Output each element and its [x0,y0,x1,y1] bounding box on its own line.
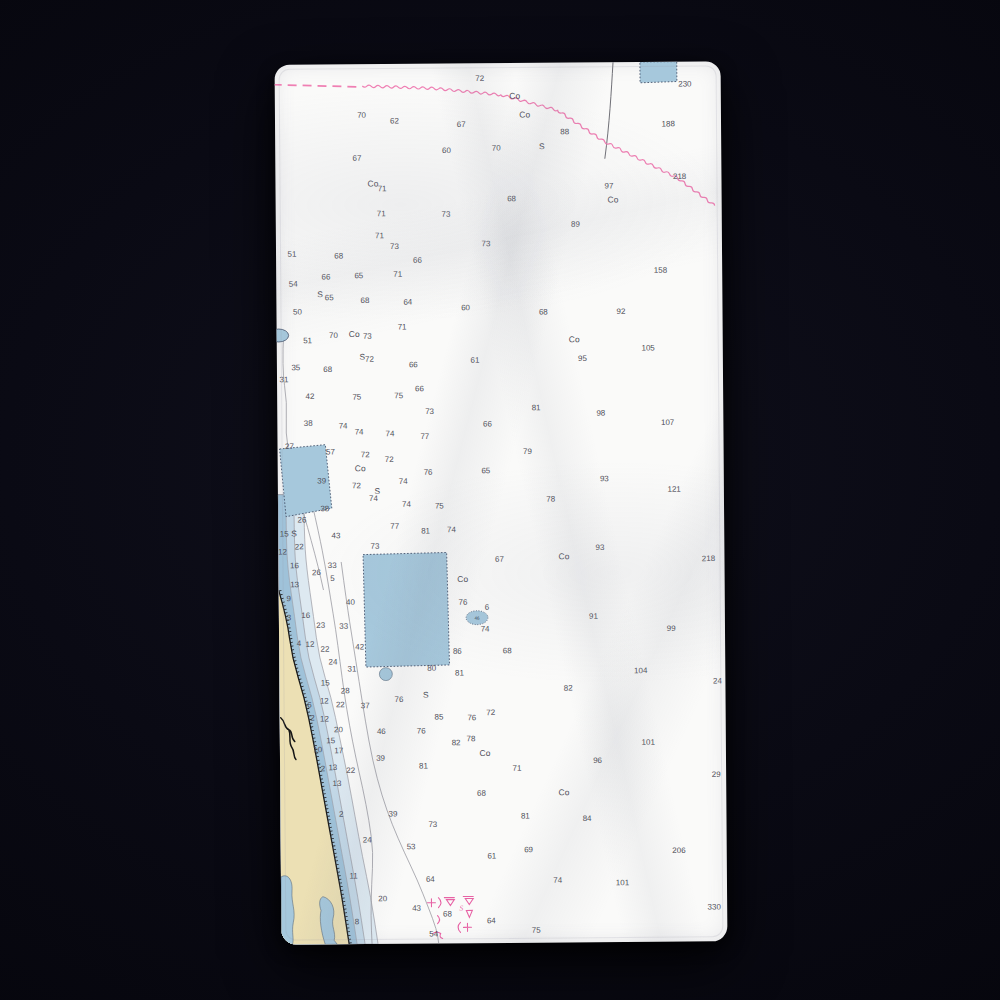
depth-sounding: 74 [355,427,364,436]
depth-sounding: 86 [453,647,462,656]
depth-sounding: 104 [634,666,648,675]
depth-sounding: 2 [310,713,315,722]
depth-sounding: 66 [322,272,331,281]
depth-sounding: 68 [503,646,512,655]
seabed-label: Co [569,334,580,344]
depth-sounding: 71 [375,231,384,240]
depth-sounding: 72 [475,74,484,83]
depth-sounding: 22 [336,700,345,709]
depth-sounding: 51 [303,336,312,345]
seabed-label: S [291,528,297,538]
depth-sounding: 20 [378,894,387,903]
seabed-label: Co [457,574,468,584]
mooring-symbol [458,922,472,932]
depth-sounding: 74 [553,876,562,885]
depth-sounding: 37 [361,701,370,710]
depth-sounding: 6 [307,701,312,710]
depth-sounding: 67 [495,555,504,564]
depth-sounding: 66 [413,256,422,265]
depth-sounding: 46 [377,727,386,736]
depth-sounding: 24 [363,835,372,844]
seabed-label: S [423,690,429,700]
depth-sounding: 33 [339,622,348,631]
depth-sounding: 70 [492,144,501,153]
depth-sounding: 80 [427,664,436,673]
depth-sounding: 88 [560,127,569,136]
depth-sounding: 31 [280,375,289,384]
depth-sounding: 121 [667,485,681,494]
depth-sounding: 105 [641,343,655,352]
depth-sounding: 218 [673,172,687,181]
seabed-label: Co [349,329,360,339]
depth-sounding: 29 [712,770,721,779]
depth-sounding: 57 [326,448,335,457]
depth-sounding: 68 [323,365,332,374]
depth-sounding: 64 [487,916,496,925]
depth-sounding: 22 [320,645,329,654]
depth-soundings: 72230CoCo70626788188676070SCo7197Co21868… [275,72,725,940]
tick-symbol [438,916,440,924]
depth-sounding: 40 [346,598,355,607]
depth-sounding: 26 [312,568,321,577]
depth-sounding: 51 [288,250,297,259]
depth-sounding: 72 [352,481,361,490]
depth-sounding: 23 [316,621,325,630]
depth-sounding: 89 [571,220,580,229]
depth-sounding: 73 [390,242,399,251]
depth-sounding: 2 [339,810,344,819]
depth-sounding: 75 [532,926,541,935]
depth-sounding: 82 [564,684,573,693]
depth-sounding: 101 [616,878,630,887]
depth-sounding: 65 [354,271,363,280]
depth-sounding: 73 [428,820,437,829]
depth-sounding: 71 [378,184,387,193]
depth-sounding: 75 [435,501,444,510]
depth-sounding: 76 [395,695,404,704]
depth-sounding: 62 [390,117,399,126]
depth-sounding: 66 [415,384,424,393]
depth-sounding: 72 [365,355,374,364]
depth-sounding: 71 [377,209,386,218]
depth-sounding: 74 [385,429,394,438]
depth-sounding: 6 [485,603,490,612]
depth-sounding: 39 [317,476,326,485]
depth-sounding: 43 [332,531,341,540]
depth-sounding: 74 [447,525,456,534]
depth-sounding: 53 [407,842,416,851]
depth-sounding: 65 [481,466,490,475]
depth-sounding: 64 [426,875,435,884]
depth-sounding: 5 [330,574,335,583]
depth-sounding: 22 [346,766,355,775]
depth-sounding: 74 [399,477,408,486]
depth-sounding: 72 [385,455,394,464]
depth-sounding: 61 [487,851,496,860]
obstruction-label: 46 [474,616,480,621]
depth-sounding: 81 [521,811,530,820]
depth-sounding: 81 [421,526,430,535]
depth-sounding: 67 [352,154,361,163]
depth-sounding: 9 [286,594,291,603]
depth-sounding: 74 [339,422,348,431]
depth-sounding: 2 [321,764,326,773]
depth-sounding: 72 [486,708,495,717]
depth-sounding: 38 [320,504,329,513]
seabed-label: S [539,141,545,151]
depth-sounding: 78 [467,734,476,743]
depth-sounding: 38 [304,419,313,428]
depth-sounding: 3 [287,613,292,622]
depth-sounding: 68 [443,910,452,919]
depth-sounding: 60 [461,303,470,312]
depth-sounding: 99 [667,624,676,633]
depth-sounding: 76 [417,727,426,736]
depth-sounding: 15 [326,736,335,745]
depth-sounding: 69 [524,845,533,854]
depth-sounding: 28 [341,686,350,695]
depth-sounding: 13 [328,763,337,772]
depth-sounding: 35 [291,363,300,372]
depth-sounding: 107 [661,418,675,427]
depth-sounding: 13 [290,580,299,589]
depth-sounding: 68 [477,789,486,798]
depth-sounding: 93 [600,474,609,483]
depth-sounding: 66 [483,419,492,428]
depth-sounding: 77 [420,432,429,441]
depth-sounding: 81 [419,761,428,770]
seabed-label: S [317,289,323,299]
seabed-label: Co [558,551,569,561]
depth-sounding: 71 [393,270,402,279]
depth-sounding: 12 [320,696,329,705]
dump-site-box [363,552,449,667]
depth-sounding: 85 [435,712,444,721]
mooring-symbol [427,898,441,908]
depth-sounding: 43 [412,904,421,913]
depth-sounding: 31 [348,664,357,673]
depth-sounding: 26 [298,515,307,524]
depth-sounding: 60 [442,146,451,155]
depth-sounding: 20 [334,725,343,734]
depth-sounding: 10 [313,745,322,754]
depth-sounding: 17 [334,746,343,755]
depth-sounding: 70 [357,111,366,120]
product-photo-scene: 46 72230CoCo70626788188676070SCo7197Co21… [0,0,1000,1000]
beacon-symbol [444,898,454,906]
depth-sounding: 73 [482,239,491,248]
depth-sounding: 68 [539,307,548,316]
depth-sounding: 77 [390,522,399,531]
depth-sounding: 188 [662,119,676,128]
depth-sounding: 82 [452,738,461,747]
depth-sounding: 15 [321,679,330,688]
magenta-label: S [459,903,463,912]
magenta-labels: S [459,903,463,912]
depth-sounding: 24 [329,658,338,667]
depth-sounding: 81 [455,669,464,678]
depth-sounding: 76 [467,713,476,722]
depth-sounding: 13 [332,779,341,788]
depth-sounding: 71 [398,323,407,332]
depth-sounding: 24 [713,676,722,685]
seabed-label: Co [479,748,490,758]
depth-sounding: 76 [424,468,433,477]
depth-sounding: 96 [593,756,602,765]
depth-sounding: 12 [320,714,329,723]
depth-sounding: 68 [361,296,370,305]
depth-sounding: 16 [301,611,310,620]
depth-sounding: 95 [578,354,587,363]
depth-sounding: 74 [402,500,411,509]
depth-sounding: 42 [306,392,315,401]
depth-sounding: 12 [278,547,287,556]
depth-sounding: 70 [329,331,338,340]
depth-sounding: 42 [355,642,364,651]
depth-sounding: 54 [429,930,438,939]
depth-sounding: 97 [605,182,614,191]
depth-sounding: 71 [513,764,522,773]
seabed-label: Co [509,91,520,101]
depth-sounding: 11 [349,871,358,880]
depth-sounding: 73 [425,407,434,416]
depth-sounding: 50 [293,307,302,316]
chart-note-box [640,62,677,83]
depth-sounding: 65 [325,293,334,302]
depth-sounding: 91 [589,612,598,621]
seabed-label: Co [519,110,530,120]
depth-sounding: 67 [457,120,466,129]
depth-sounding: 72 [361,450,370,459]
depth-sounding: 81 [532,403,541,412]
depth-sounding: 158 [654,266,668,275]
depth-sounding: 75 [352,393,361,402]
nautical-chart-towel: 46 72230CoCo70626788188676070SCo7197Co21… [275,61,728,944]
depth-sounding: 92 [616,307,625,316]
depth-sounding: 22 [295,542,304,551]
depth-sounding: 12 [306,640,315,649]
depth-sounding: 15 [280,530,289,539]
depth-sounding: 68 [334,251,343,260]
depth-sounding: 84 [583,814,592,823]
depth-sounding: 54 [289,280,298,289]
shoal-circle [379,668,392,681]
depth-sounding: 73 [370,542,379,551]
depth-sounding: 74 [481,625,490,634]
depth-sounding: 61 [471,356,480,365]
depth-sounding: 68 [507,194,516,203]
depth-sounding: 39 [376,754,385,763]
depth-sounding: 75 [394,391,403,400]
depth-sounding: 27 [285,442,294,451]
depth-sounding: 101 [642,738,656,747]
depth-sounding: 39 [388,809,397,818]
beacon-symbol [463,896,473,904]
depth-sounding: 76 [458,598,467,607]
depth-sounding: 206 [672,846,686,855]
depth-sounding: 73 [442,210,451,219]
depth-sounding: 230 [678,79,692,88]
beacon-symbol [466,910,472,917]
depth-sounding: 218 [702,554,716,563]
seabed-label: Co [558,787,569,797]
depth-sounding: 4 [297,639,302,648]
seabed-label: Co [607,194,618,204]
depth-sounding: 64 [403,298,412,307]
shoal-oval [275,329,289,342]
depth-sounding: 78 [546,495,555,504]
boundary-dashed-line [275,84,363,88]
depth-sounding: 73 [363,332,372,341]
depth-sounding: 66 [409,360,418,369]
depth-sounding: 16 [290,561,299,570]
seabed-label: Co [355,463,366,473]
depth-sounding: 93 [595,543,604,552]
depth-sounding: 74 [369,494,378,503]
depth-sounding: 330 [708,902,722,911]
nautical-chart: 46 72230CoCo70626788188676070SCo7197Co21… [275,61,728,944]
depth-sounding: 79 [523,447,532,456]
depth-sounding: 33 [328,561,337,570]
depth-sounding: 8 [355,917,360,926]
depth-sounding: 98 [596,409,605,418]
